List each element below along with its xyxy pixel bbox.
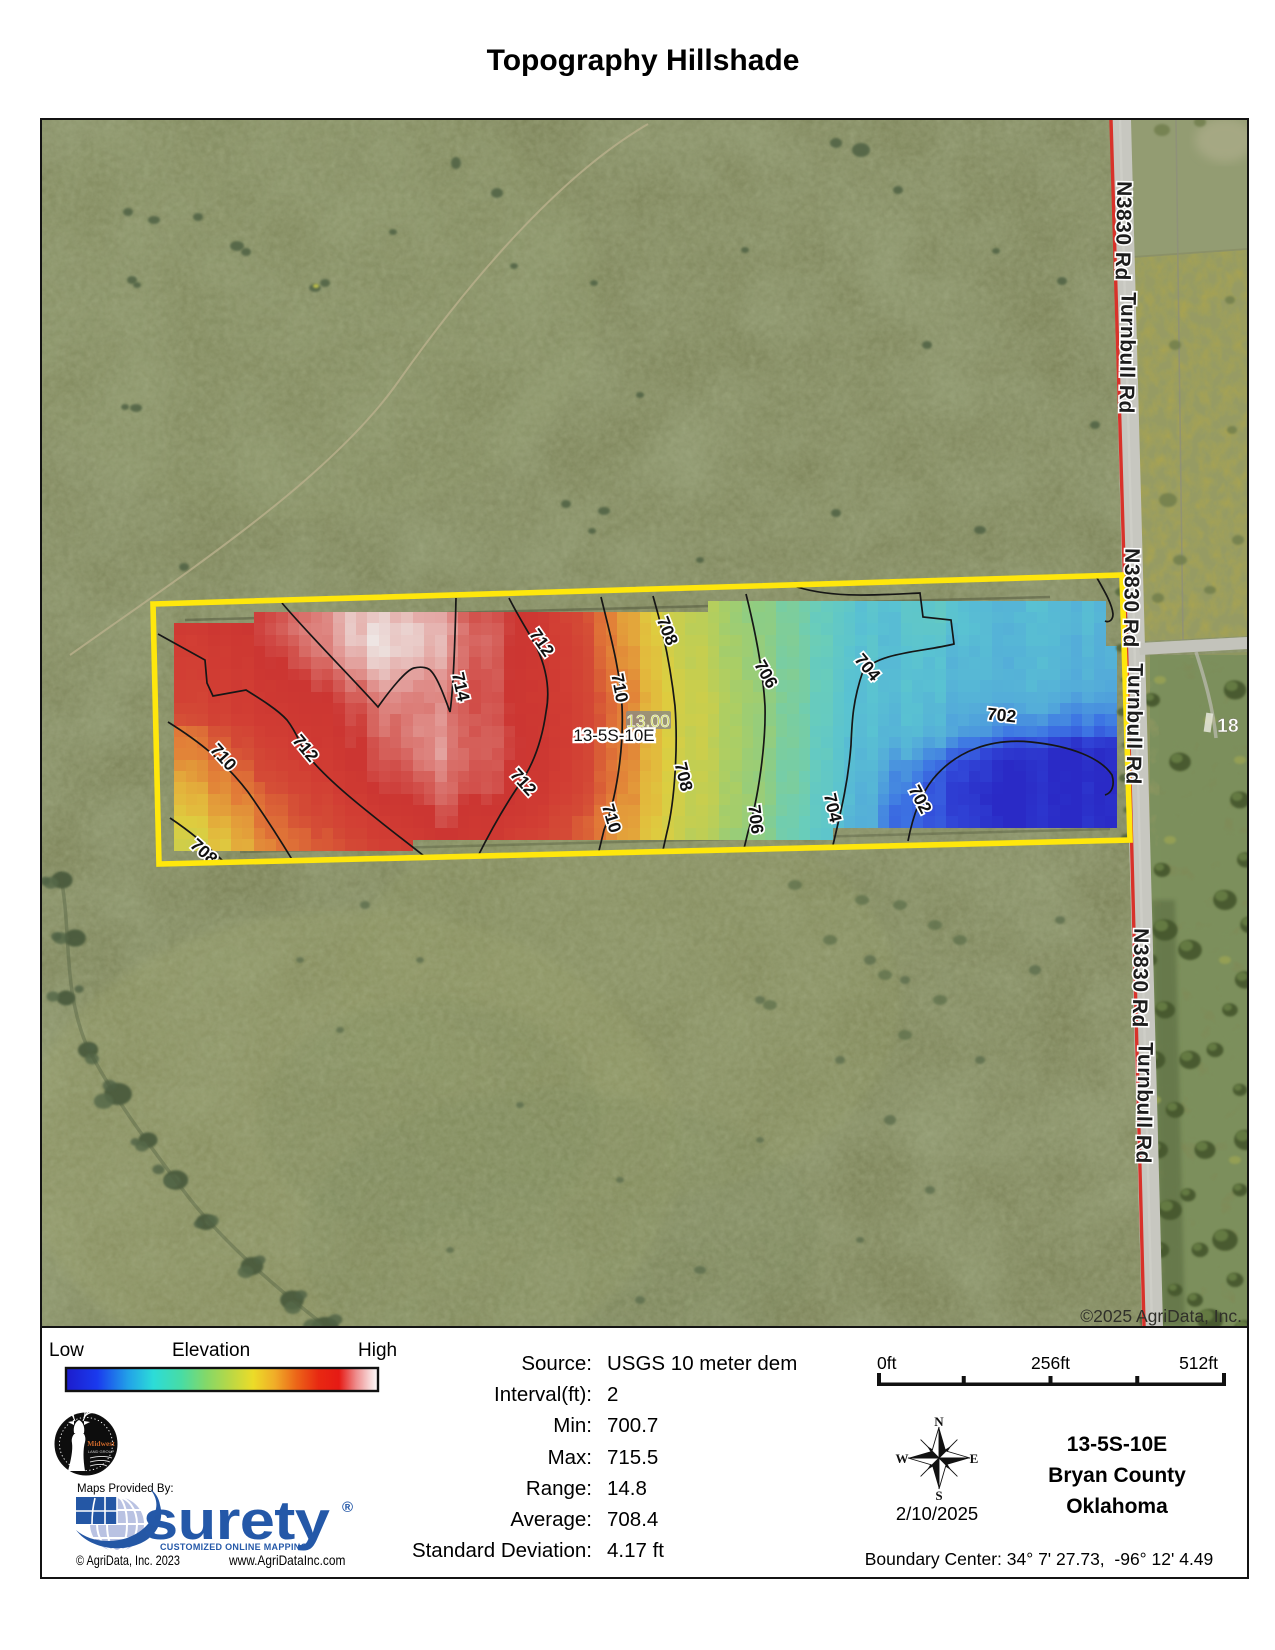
svg-text:N: N [934, 1414, 944, 1429]
svg-text:W: W [896, 1451, 909, 1466]
svg-text:Midwest: Midwest [87, 1439, 115, 1448]
svg-text:LAND GROUP: LAND GROUP [88, 1449, 115, 1454]
svg-text:®: ® [342, 1499, 353, 1516]
svg-text:CUSTOMIZED ONLINE MAPPING: CUSTOMIZED ONLINE MAPPING [160, 1542, 308, 1552]
svg-text:E: E [970, 1451, 979, 1466]
svg-text:S: S [935, 1488, 942, 1503]
